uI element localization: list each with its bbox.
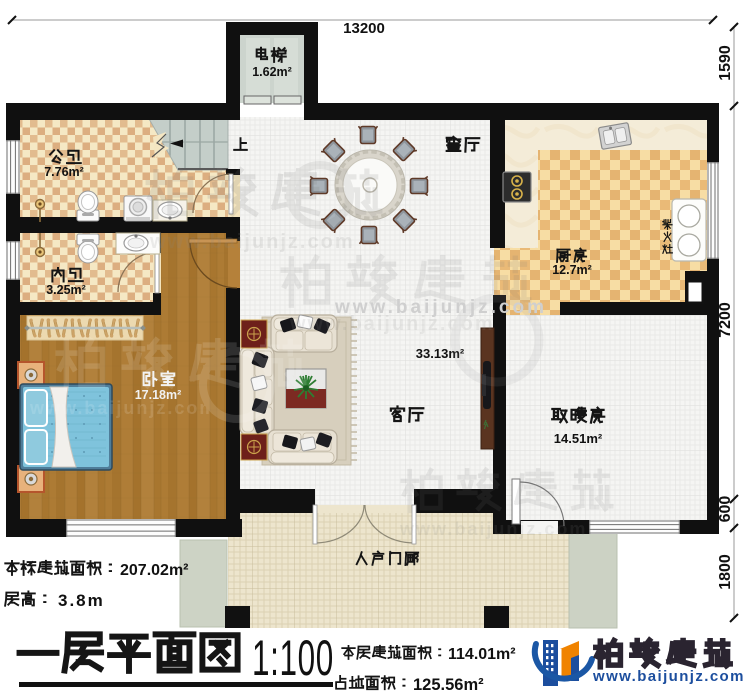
svg-text:14.51m²: 14.51m²: [554, 431, 603, 446]
svg-text:1:100: 1:100: [252, 630, 334, 686]
svg-text:7200: 7200: [717, 302, 734, 338]
svg-text:114.01m²: 114.01m²: [448, 646, 516, 663]
svg-text:207.02m²: 207.02m²: [120, 562, 189, 579]
svg-text:13200: 13200: [343, 20, 385, 37]
svg-text:www.baijunjz.com: www.baijunjz.com: [399, 519, 587, 539]
svg-text:12.7m²: 12.7m²: [552, 263, 592, 277]
svg-text:3.25m²: 3.25m²: [46, 283, 86, 297]
svg-text:www.baijunjz.com: www.baijunjz.com: [592, 668, 745, 685]
svg-text:7.76m²: 7.76m²: [44, 165, 84, 179]
svg-text:3.8m: 3.8m: [58, 591, 105, 610]
svg-text:www.baijunjz.com: www.baijunjz.com: [29, 398, 217, 418]
svg-text:1800: 1800: [717, 554, 734, 590]
svg-text:1590: 1590: [717, 45, 734, 81]
svg-text:www.baijunjz.com: www.baijunjz.com: [149, 231, 355, 253]
svg-text:www.baijunjz.com: www.baijunjz.com: [334, 297, 547, 318]
svg-text:600: 600: [717, 496, 734, 523]
svg-text:125.56m²: 125.56m²: [413, 676, 484, 694]
svg-text:1.62m²: 1.62m²: [252, 65, 292, 79]
